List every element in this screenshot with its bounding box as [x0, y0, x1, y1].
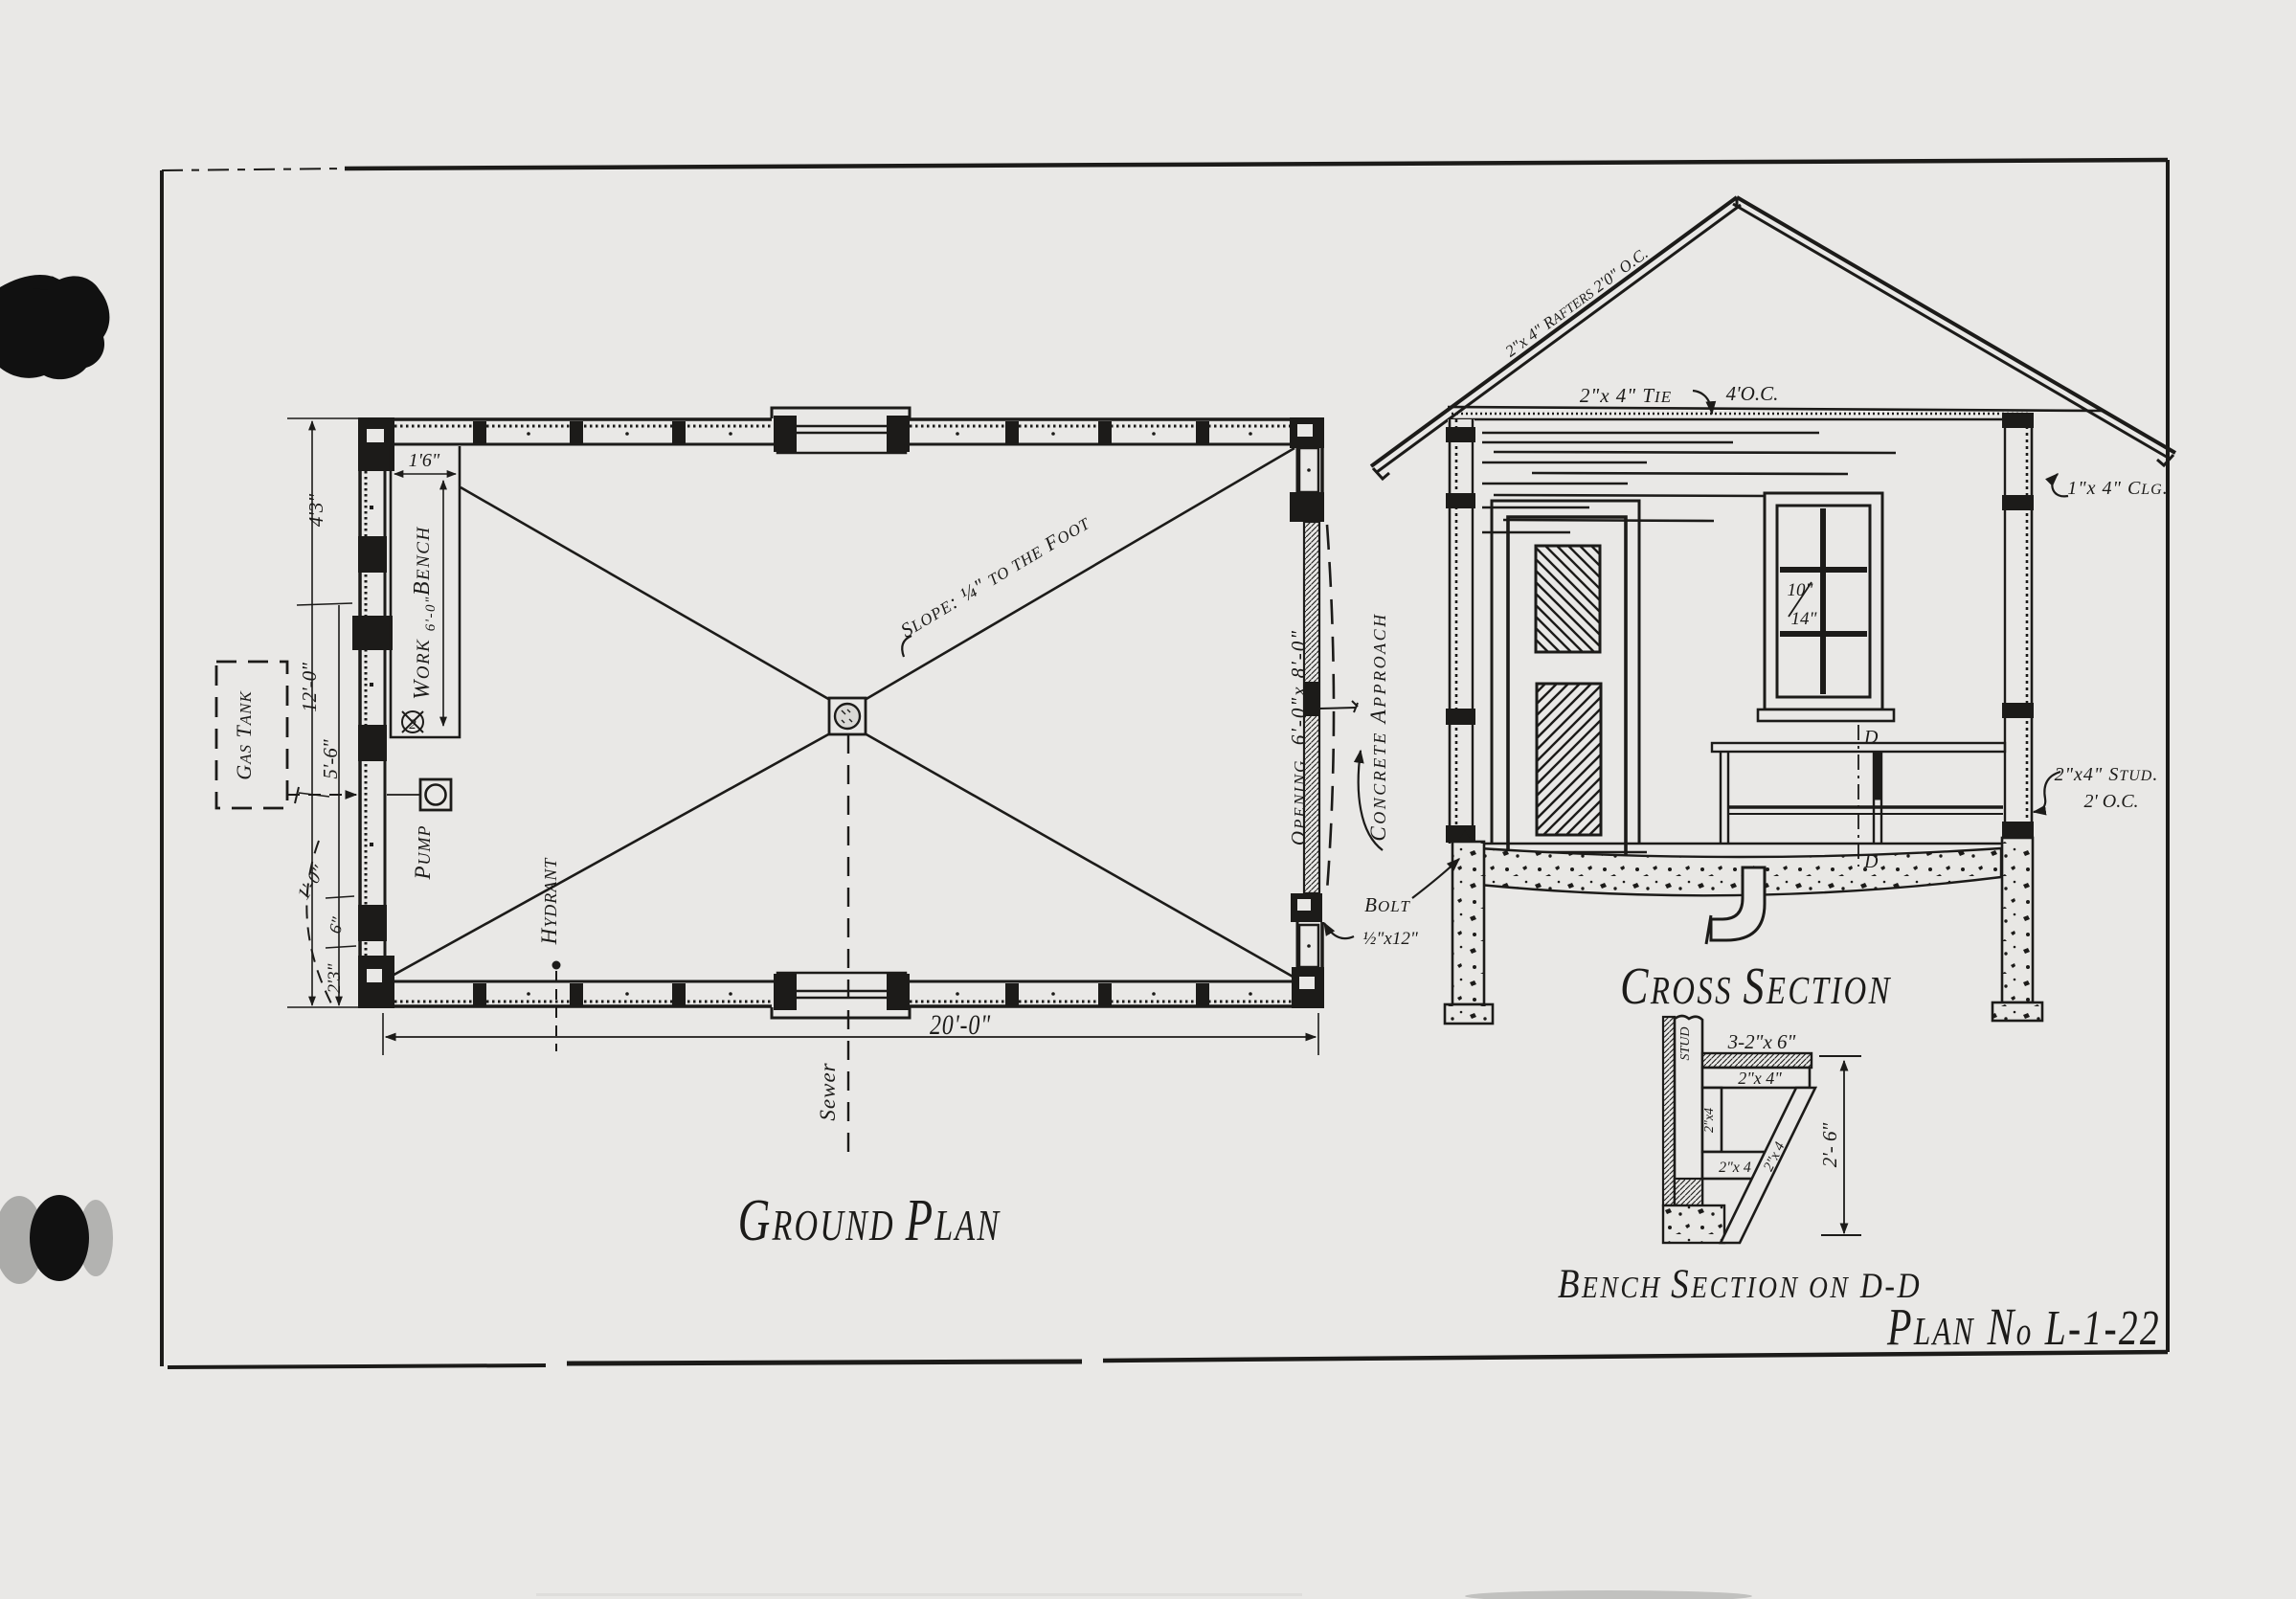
svg-text:Sewer: Sewer	[816, 1062, 840, 1120]
svg-text:½"x12": ½"x12"	[1362, 929, 1419, 949]
svg-text:HYDRANT: HYDRANT	[537, 857, 561, 946]
svg-text:2' O.C.: 2' O.C.	[2083, 791, 2138, 812]
svg-text:2"x 4": 2"x 4"	[1738, 1069, 1782, 1088]
svg-text:2"x 4: 2"x 4	[1719, 1160, 1751, 1176]
svg-text:1'6": 1'6"	[409, 450, 440, 471]
svg-text:2"x 4" TIE: 2"x 4" TIE	[1580, 384, 1672, 407]
svg-text:14": 14"	[1791, 609, 1818, 629]
svg-text:STUD: STUD	[1678, 1026, 1693, 1060]
svg-text:CONCRETE APPROACH: CONCRETE APPROACH	[1366, 612, 1390, 841]
svg-text:3-2"x 6": 3-2"x 6"	[1727, 1030, 1796, 1053]
svg-text:BOLT: BOLT	[1364, 893, 1410, 916]
svg-text:2'- 6": 2'- 6"	[1818, 1123, 1841, 1168]
svg-text:OPENING 6'-0"x 8'-0": OPENING 6'-0"x 8'-0"	[1287, 629, 1310, 845]
svg-text:D: D	[1863, 727, 1879, 748]
svg-text:20'-0": 20'-0"	[930, 1008, 991, 1040]
svg-text:1"x 4" CLG.: 1"x 4" CLG.	[2067, 478, 2168, 499]
svg-text:2'3": 2'3"	[325, 962, 345, 993]
svg-text:12'-0": 12'-0"	[298, 663, 321, 712]
svg-text:2"x4" STUD.: 2"x4" STUD.	[2055, 764, 2159, 785]
svg-text:5'-6": 5'-6"	[319, 739, 342, 778]
svg-text:D: D	[1863, 851, 1879, 872]
svg-text:4'O.C.: 4'O.C.	[1726, 382, 1779, 405]
svg-text:2"x4: 2"x4	[1702, 1108, 1717, 1133]
svg-text:PUMP: PUMP	[411, 824, 435, 880]
svg-text:4'3": 4'3"	[304, 494, 327, 527]
svg-text:2: 2	[409, 717, 416, 732]
